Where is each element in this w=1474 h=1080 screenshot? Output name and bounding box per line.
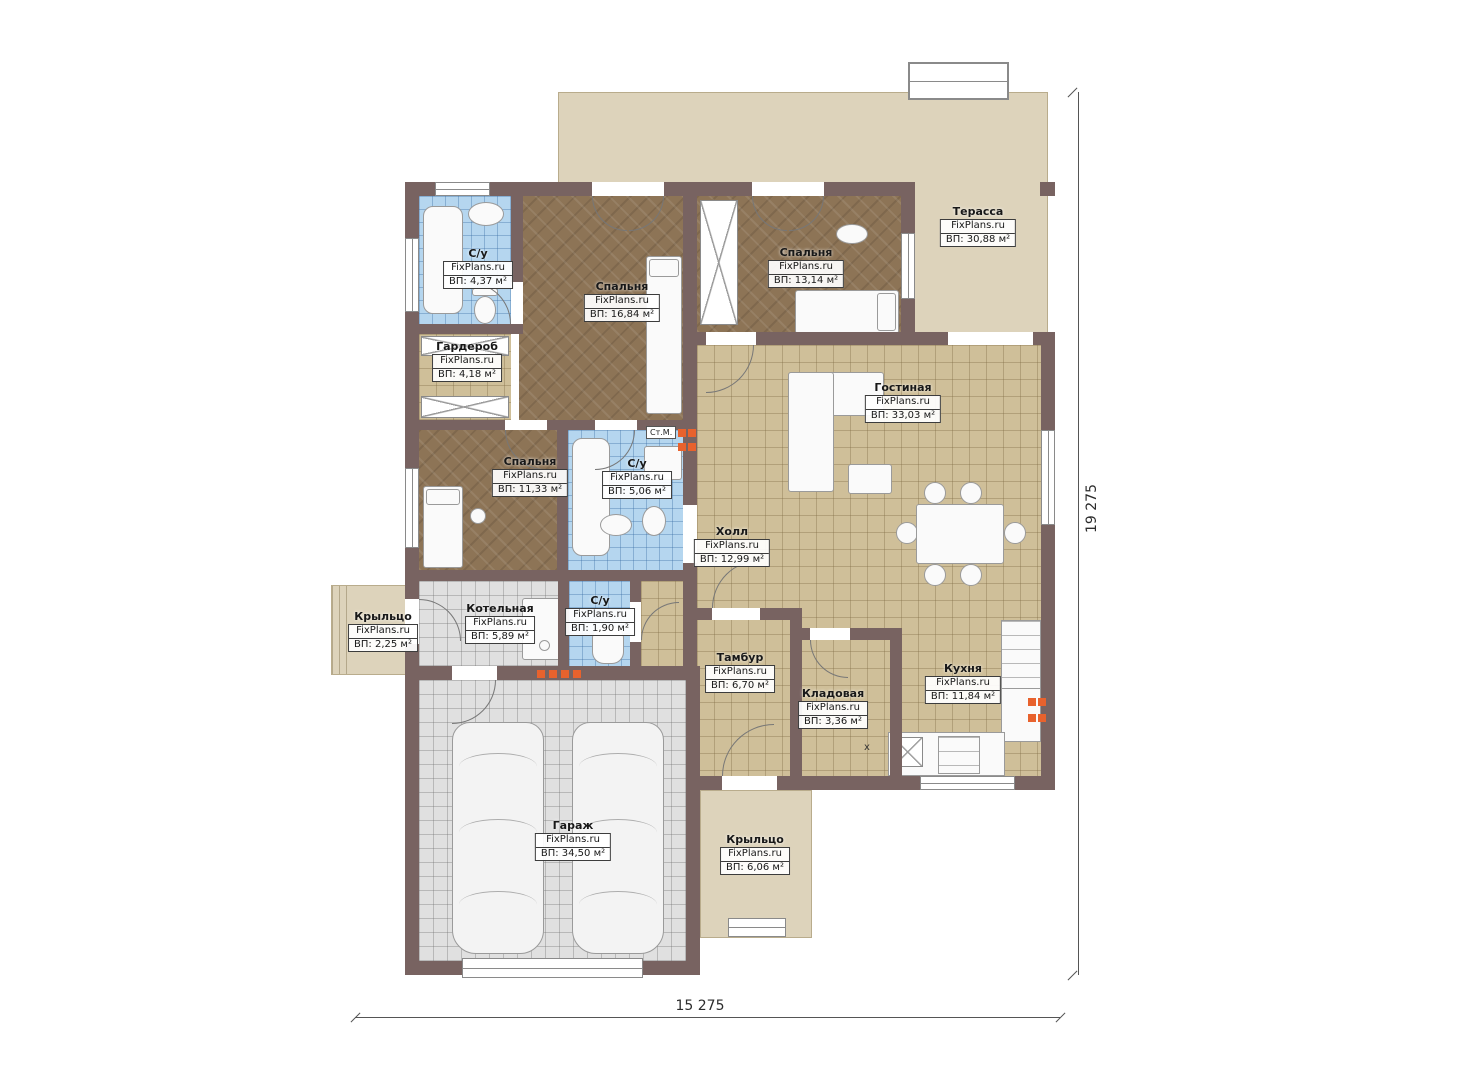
dimension-line-right — [1078, 92, 1079, 975]
door-gap-vestibule-hall — [712, 608, 760, 620]
toilet-bath-middle — [642, 506, 666, 536]
bed-bedroom-main — [646, 256, 682, 414]
heater-dot — [678, 443, 686, 451]
dimension-line-bottom — [355, 1017, 1060, 1018]
room-label-porch-left: Крыльцо FixPlans.ruВП: 2,25 м² — [348, 611, 418, 652]
window-living-right — [1041, 430, 1055, 525]
dimension-height-label: 19 275 — [1084, 484, 1100, 533]
pillow-bedroom-main — [649, 259, 679, 277]
window-kitchen-bottom — [920, 776, 1015, 790]
car-rear-window — [579, 891, 656, 918]
room-label-vestibule: Тамбур FixPlans.ruВП: 6,70 м² — [705, 652, 775, 693]
room-label-bath-top: С/у FixPlans.ruВП: 4,37 м² — [443, 248, 513, 289]
burner-dot — [1028, 714, 1036, 722]
coffee-table — [848, 464, 892, 494]
burner-dot — [1038, 714, 1046, 722]
closet-wardrobe-bottom — [421, 396, 509, 418]
room-label-storage: Кладовая FixPlans.ruВП: 3,36 м² — [798, 688, 868, 729]
room-label-living: Гостиная FixPlans.ruВП: 33,03 м² — [865, 382, 941, 423]
door-gap-terrace-1 — [592, 182, 664, 196]
car-roof-line — [459, 819, 536, 846]
window-bedroom-right-terrace — [901, 233, 915, 299]
car-rear-window — [459, 891, 536, 918]
room-label-kitchen: Кухня FixPlans.ruВП: 11,84 м² — [925, 663, 1001, 704]
floor-plan: x Терасса FixPlans.ruВП: 30,88 м² С/у Fi… — [0, 0, 1474, 1080]
door-gap-bath-middle — [595, 420, 637, 430]
sink-bedroom-right — [836, 224, 868, 244]
door-gap-garage — [452, 666, 497, 680]
pillow-bedroom-left — [426, 489, 460, 505]
radiator-dot — [561, 670, 569, 678]
terrace-vent — [908, 62, 1009, 100]
boiler-knob — [539, 640, 550, 651]
sink-bath-top — [468, 202, 504, 226]
radiator-dot — [573, 670, 581, 678]
dining-chair — [896, 522, 918, 544]
window-left-bedroom — [405, 468, 419, 548]
wall-left-lower — [405, 644, 419, 975]
washing-machine-label: Ст.М. — [646, 426, 676, 439]
room-label-bedroom-left: Спальня FixPlans.ruВП: 11,33 м² — [492, 456, 568, 497]
dining-chair — [924, 564, 946, 586]
burner-dot — [1038, 698, 1046, 706]
door-gap-storage — [810, 628, 850, 640]
heater-dot — [688, 429, 696, 437]
car-windshield — [459, 753, 536, 780]
car-windshield — [579, 753, 656, 780]
room-label-bedroom-right: Спальня FixPlans.ruВП: 13,14 м² — [768, 247, 844, 288]
wall-bedroom-left-bath-div — [557, 430, 568, 570]
terrace-wall-stub — [1040, 182, 1055, 196]
dim-tick — [1068, 88, 1078, 98]
dimension-width-label: 15 275 — [676, 998, 725, 1014]
door-gap-bedroom-right — [706, 332, 756, 345]
room-label-bedroom-main: Спальня FixPlans.ruВП: 16,84 м² — [584, 281, 660, 322]
room-label-terrace: Терасса FixPlans.ruВП: 30,88 м² — [940, 206, 1016, 247]
wall-garage-right — [686, 666, 700, 975]
radiator-dot — [549, 670, 557, 678]
wall-storage-east — [890, 628, 902, 776]
door-gap-bedroom-left — [505, 420, 547, 430]
heater-dot — [678, 429, 686, 437]
car-left — [452, 722, 544, 954]
dining-chair — [960, 482, 982, 504]
door-gap-entrance — [722, 776, 777, 790]
porch-bottom-steps — [728, 918, 786, 937]
garage-door — [462, 958, 643, 978]
dining-table — [916, 504, 1004, 564]
window-bath-top — [435, 182, 490, 196]
room-label-hall: Холл FixPlans.ruВП: 12,99 м² — [694, 526, 770, 567]
dining-chair — [960, 564, 982, 586]
door-gap-terrace-2 — [752, 182, 824, 196]
opening-living-terrace — [948, 332, 1033, 345]
burner-dot — [1028, 698, 1036, 706]
room-label-bath-middle: С/у FixPlans.ruВП: 5,06 м² — [602, 458, 672, 499]
dim-tick — [1068, 971, 1078, 981]
pillow-bedroom-right — [877, 293, 896, 331]
kitchen-dishwasher — [938, 736, 980, 774]
sink-mark: x — [864, 742, 870, 753]
closet-bedroom-right — [700, 200, 738, 325]
dining-chair — [1004, 522, 1026, 544]
window-left-bath — [405, 238, 419, 312]
wall-bath-top-south — [419, 324, 523, 334]
wall-row-south — [419, 570, 695, 581]
sink-bath-middle — [600, 514, 632, 536]
dining-chair — [924, 482, 946, 504]
stool-bedroom-left — [470, 508, 486, 524]
sofa-body — [788, 372, 834, 492]
room-label-bath-small: С/у FixPlans.ruВП: 1,90 м² — [565, 595, 635, 636]
room-label-boiler: Котельная FixPlans.ruВП: 5,89 м² — [465, 603, 535, 644]
wall-garage-bottom-left — [405, 961, 462, 975]
heater-dot — [688, 443, 696, 451]
radiator-dot — [537, 670, 545, 678]
room-label-porch-bottom: Крыльцо FixPlans.ruВП: 6,06 м² — [720, 834, 790, 875]
room-label-garage: Гараж FixPlans.ruВП: 34,50 м² — [535, 820, 611, 861]
room-label-wardrobe: Гардероб FixPlans.ruВП: 4,18 м² — [432, 341, 502, 382]
